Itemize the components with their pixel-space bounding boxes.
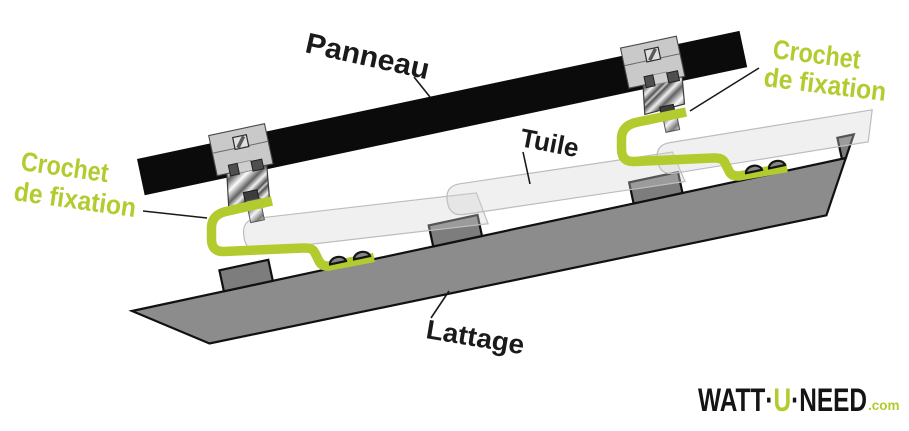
svg-text:WATT·U·NEED: WATT·U·NEED <box>698 382 867 418</box>
svg-text:.com: .com <box>868 398 900 413</box>
